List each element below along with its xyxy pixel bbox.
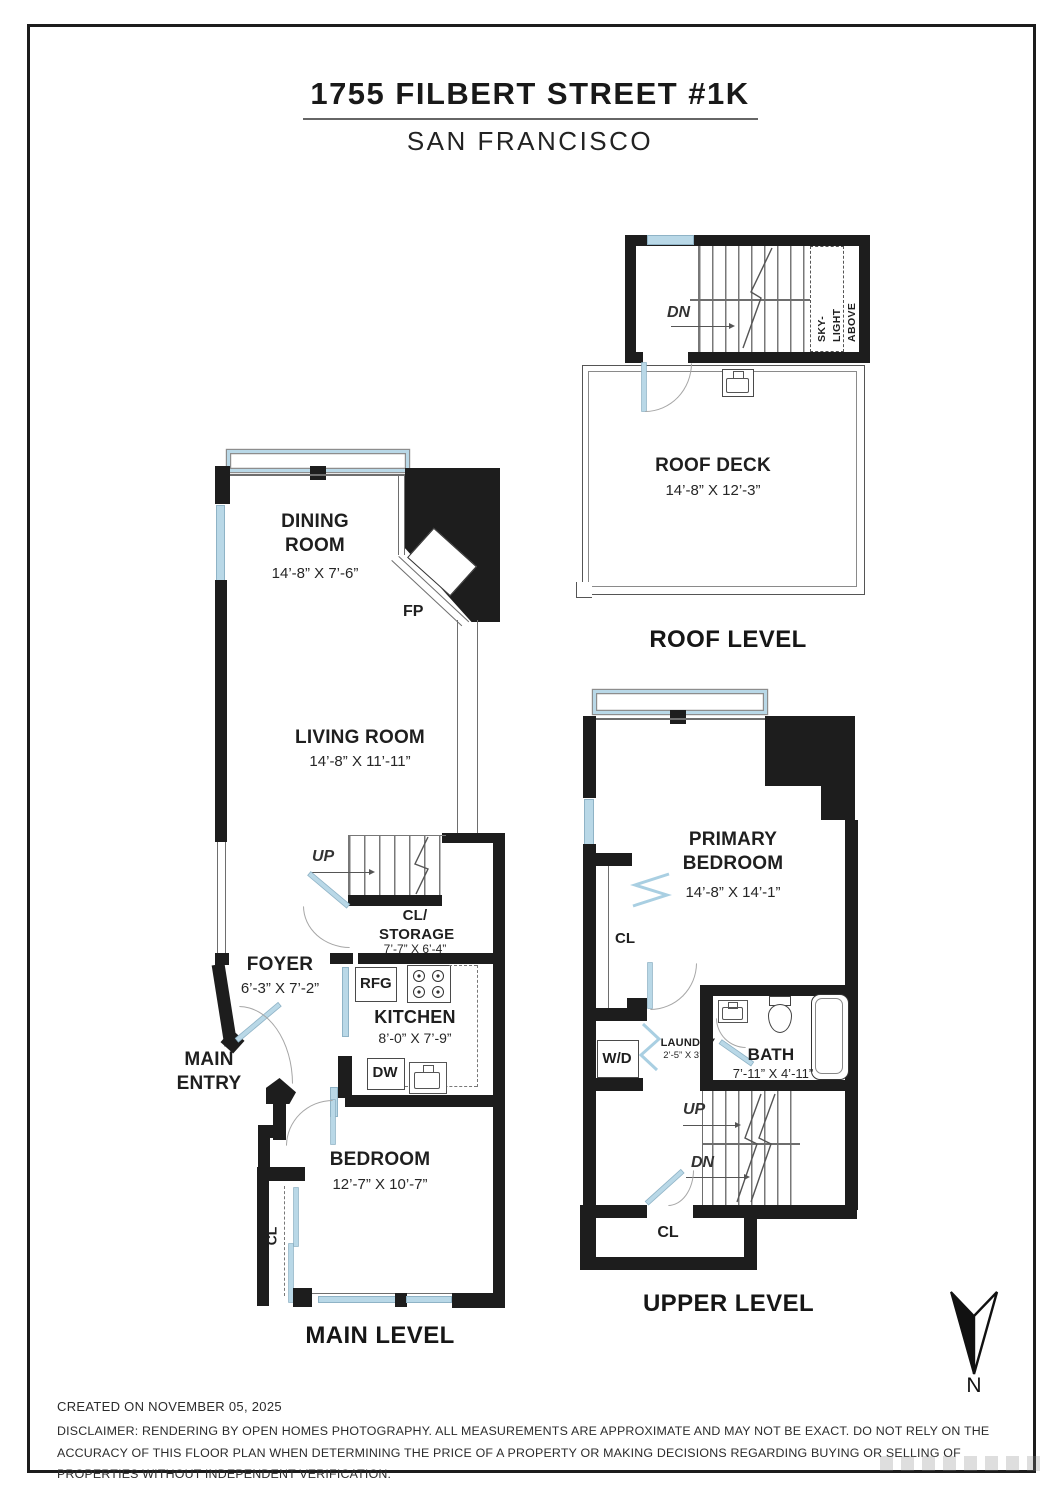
window (585, 800, 593, 844)
stairs-dn-label: DN (667, 304, 690, 322)
roof-deck-dims: 14’-8” X 12’-3” (633, 482, 793, 499)
window-mullion (310, 466, 326, 480)
disclaimer-text: DISCLAIMER: RENDERING BY OPEN HOMES PHOT… (57, 1421, 1017, 1486)
wall (700, 985, 713, 1091)
wall (700, 1080, 857, 1091)
wall (755, 1205, 857, 1219)
wall (625, 235, 636, 363)
burner (432, 970, 444, 982)
upper-stairs (712, 1091, 800, 1206)
counter-dashed (449, 965, 477, 966)
wall (588, 853, 632, 866)
up-arrow-head (735, 1122, 741, 1128)
floor-plan-page: 1755 FILBERT STREET #1K SAN FRANCISCO SK… (0, 0, 1060, 1498)
wall (442, 833, 498, 843)
wall (258, 1125, 286, 1138)
opening-line (217, 842, 218, 954)
stairs-up-label: UP (683, 1101, 705, 1119)
wall (859, 235, 870, 363)
dining-room-dims: 14’-8” X 7’-6” (240, 565, 390, 582)
burner (413, 986, 425, 998)
living-room-dims: 14’-8” X 11’-11” (280, 753, 440, 770)
sink-fixture (718, 1000, 748, 1023)
wall-line (457, 620, 458, 833)
window (407, 1297, 451, 1302)
opening-line (225, 842, 226, 954)
bath-dims: 7’-11” X 4’-11” (715, 1066, 831, 1081)
page-subtitle: SAN FRANCISCO (0, 126, 1060, 157)
north-label: N (938, 1374, 1010, 1398)
door-swing-arc (303, 906, 350, 948)
window (343, 968, 348, 1036)
sink-basin (726, 378, 749, 393)
roof-level-plan: SKY- LIGHT ABOVE DN ROOF DECK 14’-8” X 1… (585, 230, 875, 650)
wall-mass (765, 716, 855, 786)
foyer-dims: 6’-3” X 7’-2” (215, 980, 345, 997)
bedroom-dims: 12’-7” X 10’-7” (300, 1176, 460, 1193)
washer-dryer-label: W/D (600, 1050, 634, 1067)
stove (407, 965, 451, 1003)
sink-fixture (409, 1062, 447, 1094)
wall (580, 1257, 757, 1270)
title-divider (303, 118, 758, 120)
skylight-label-2: LIGHT (831, 309, 843, 343)
counter-dashed (477, 965, 478, 1087)
fireplace-label: FP (403, 603, 423, 621)
refrigerator-label: RFG (360, 975, 390, 992)
main-level-label: MAIN LEVEL (280, 1322, 480, 1350)
sliding-door (289, 1244, 293, 1302)
upper-level-plan: PRIMARY BEDROOM 14’-8” X 14’-1” CL W/D L… (583, 688, 875, 1328)
window-mullion (395, 1293, 407, 1307)
dining-room-label: DINING ROOM (260, 510, 370, 559)
wall-line (596, 718, 766, 720)
wall (493, 833, 505, 1108)
living-room-label: LIVING ROOM (270, 726, 450, 750)
lower-closet-label: CL (638, 1224, 698, 1242)
north-arrow-icon (938, 1284, 1010, 1376)
laundry-dims: 2’-5” X 3’-5” (649, 1050, 727, 1061)
window-mullion (670, 710, 686, 724)
door-swing-arc (286, 1100, 333, 1146)
up-arrow-line (311, 872, 369, 873)
wall (345, 1095, 495, 1107)
wall-line (404, 475, 405, 555)
stairs-dn-label: DN (691, 1154, 714, 1172)
wall (338, 1056, 352, 1098)
skylight-label-3: ABOVE (846, 303, 858, 342)
sink-faucet (728, 1002, 738, 1009)
sink-faucet (733, 371, 744, 379)
roof-deck-parapet-inner (588, 371, 857, 587)
window (648, 236, 693, 244)
toilet-bowl (768, 1004, 792, 1033)
up-arrow-line (683, 1125, 735, 1126)
foyer-label: FOYER (230, 953, 330, 977)
wall (625, 352, 643, 363)
burner (413, 970, 425, 982)
window (217, 506, 224, 580)
sink-basin (414, 1072, 440, 1089)
main-level-plan: FP DINING ROOM 14’-8” X 7’-6” LIVING ROO… (215, 448, 505, 1338)
created-date: CREATED ON NOVEMBER 05, 2025 (57, 1399, 1017, 1414)
closet-wall-line (608, 866, 609, 1008)
wall (588, 1078, 643, 1091)
wall (257, 1167, 305, 1181)
bathtub-inner (815, 998, 843, 1074)
wall (348, 895, 442, 906)
sink-faucet (423, 1065, 434, 1073)
upper-level-label: UPPER LEVEL (641, 1290, 816, 1318)
burner (432, 986, 444, 998)
wall (215, 580, 227, 842)
wall (583, 716, 596, 798)
roof-deck-label: ROOF DECK (643, 454, 783, 478)
wall (358, 953, 495, 964)
wall-line (230, 474, 406, 476)
kitchen-dims: 8’-0” X 7’-9” (350, 1030, 480, 1046)
wall (258, 1138, 270, 1170)
wall (688, 352, 870, 363)
page-title: 1755 FILBERT STREET #1K (0, 76, 1060, 112)
page-border-frame (27, 24, 1036, 1473)
dn-arrow-line (671, 326, 729, 327)
up-arrow-head (369, 869, 375, 875)
wall (293, 1288, 312, 1307)
wall-line (398, 475, 399, 555)
closet-dashed-line (284, 1186, 285, 1296)
door-swing-arc (650, 963, 697, 1010)
wall-line (312, 1293, 453, 1294)
main-entry-label: MAIN ENTRY (167, 1048, 251, 1097)
parapet-notch (576, 582, 592, 598)
sliding-door (294, 1188, 298, 1246)
bath-label: BATH (731, 1044, 811, 1066)
dishwasher-label: DW (371, 1064, 399, 1081)
stairs-up-label: UP (312, 848, 334, 866)
roof-level-label: ROOF LEVEL (643, 626, 813, 654)
primary-bedroom-label: PRIMARY BEDROOM (668, 828, 798, 877)
wall-line (477, 620, 478, 833)
dn-arrow-head (729, 323, 735, 329)
watermark (880, 1456, 1048, 1471)
stair-landing-line (702, 1143, 800, 1145)
sink-fixture (722, 369, 754, 397)
bedroom-label: BEDROOM (320, 1148, 440, 1172)
kitchen-label: KITCHEN (360, 1006, 470, 1029)
wall-mass (821, 786, 855, 820)
skylight-label-1: SKY- (816, 316, 828, 342)
closet-label: CL (615, 930, 635, 947)
wall (215, 466, 230, 504)
stair-landing-line (690, 299, 810, 301)
door-leaf (309, 872, 350, 907)
wall (330, 953, 353, 964)
wall (627, 998, 647, 1010)
storage-label: CL/ STORAGE (379, 906, 451, 944)
closet-label: CL (263, 1227, 279, 1246)
north-arrow: N (938, 1284, 1010, 1396)
primary-bedroom-dims: 14’-8” X 14’-1” (653, 884, 813, 901)
dn-arrow-line (686, 1177, 744, 1178)
laundry-label: LAUNDRY (649, 1036, 727, 1050)
window (319, 1297, 395, 1302)
wall (493, 1108, 505, 1308)
main-stairs (348, 835, 446, 896)
dn-arrow-head (744, 1174, 750, 1180)
door-swing-arc (668, 1170, 694, 1206)
footer: CREATED ON NOVEMBER 05, 2025 DISCLAIMER:… (57, 1399, 1017, 1486)
